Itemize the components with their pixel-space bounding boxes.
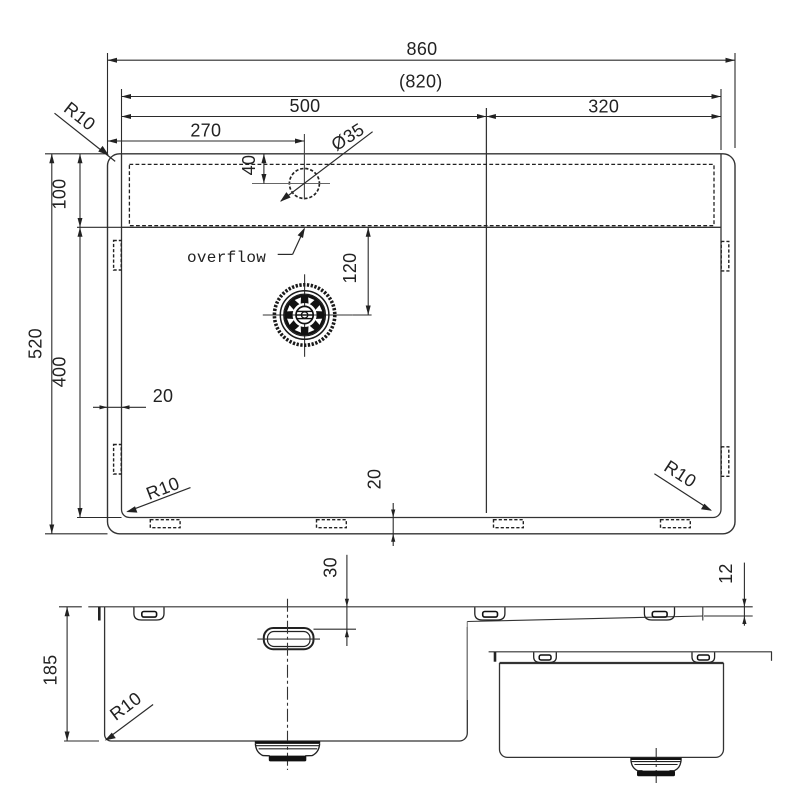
svg-text:520: 520 xyxy=(26,328,46,359)
svg-text:120: 120 xyxy=(340,253,360,284)
svg-text:860: 860 xyxy=(407,39,438,59)
svg-text:20: 20 xyxy=(365,469,385,490)
svg-text:30: 30 xyxy=(320,557,340,578)
svg-text:100: 100 xyxy=(50,179,70,210)
svg-text:Ø35: Ø35 xyxy=(328,119,368,155)
svg-text:270: 270 xyxy=(190,121,221,141)
svg-text:500: 500 xyxy=(290,96,321,116)
svg-text:(820): (820) xyxy=(399,72,443,92)
svg-text:12: 12 xyxy=(716,563,736,584)
svg-text:R10: R10 xyxy=(143,473,182,504)
svg-text:R10: R10 xyxy=(106,688,145,724)
svg-text:185: 185 xyxy=(41,655,61,686)
svg-text:20: 20 xyxy=(153,386,174,406)
svg-text:R10: R10 xyxy=(60,98,99,135)
svg-text:R10: R10 xyxy=(661,456,700,491)
svg-text:overflow: overflow xyxy=(187,249,266,267)
svg-text:400: 400 xyxy=(50,356,70,387)
svg-text:40: 40 xyxy=(239,155,259,176)
svg-text:320: 320 xyxy=(588,97,619,117)
